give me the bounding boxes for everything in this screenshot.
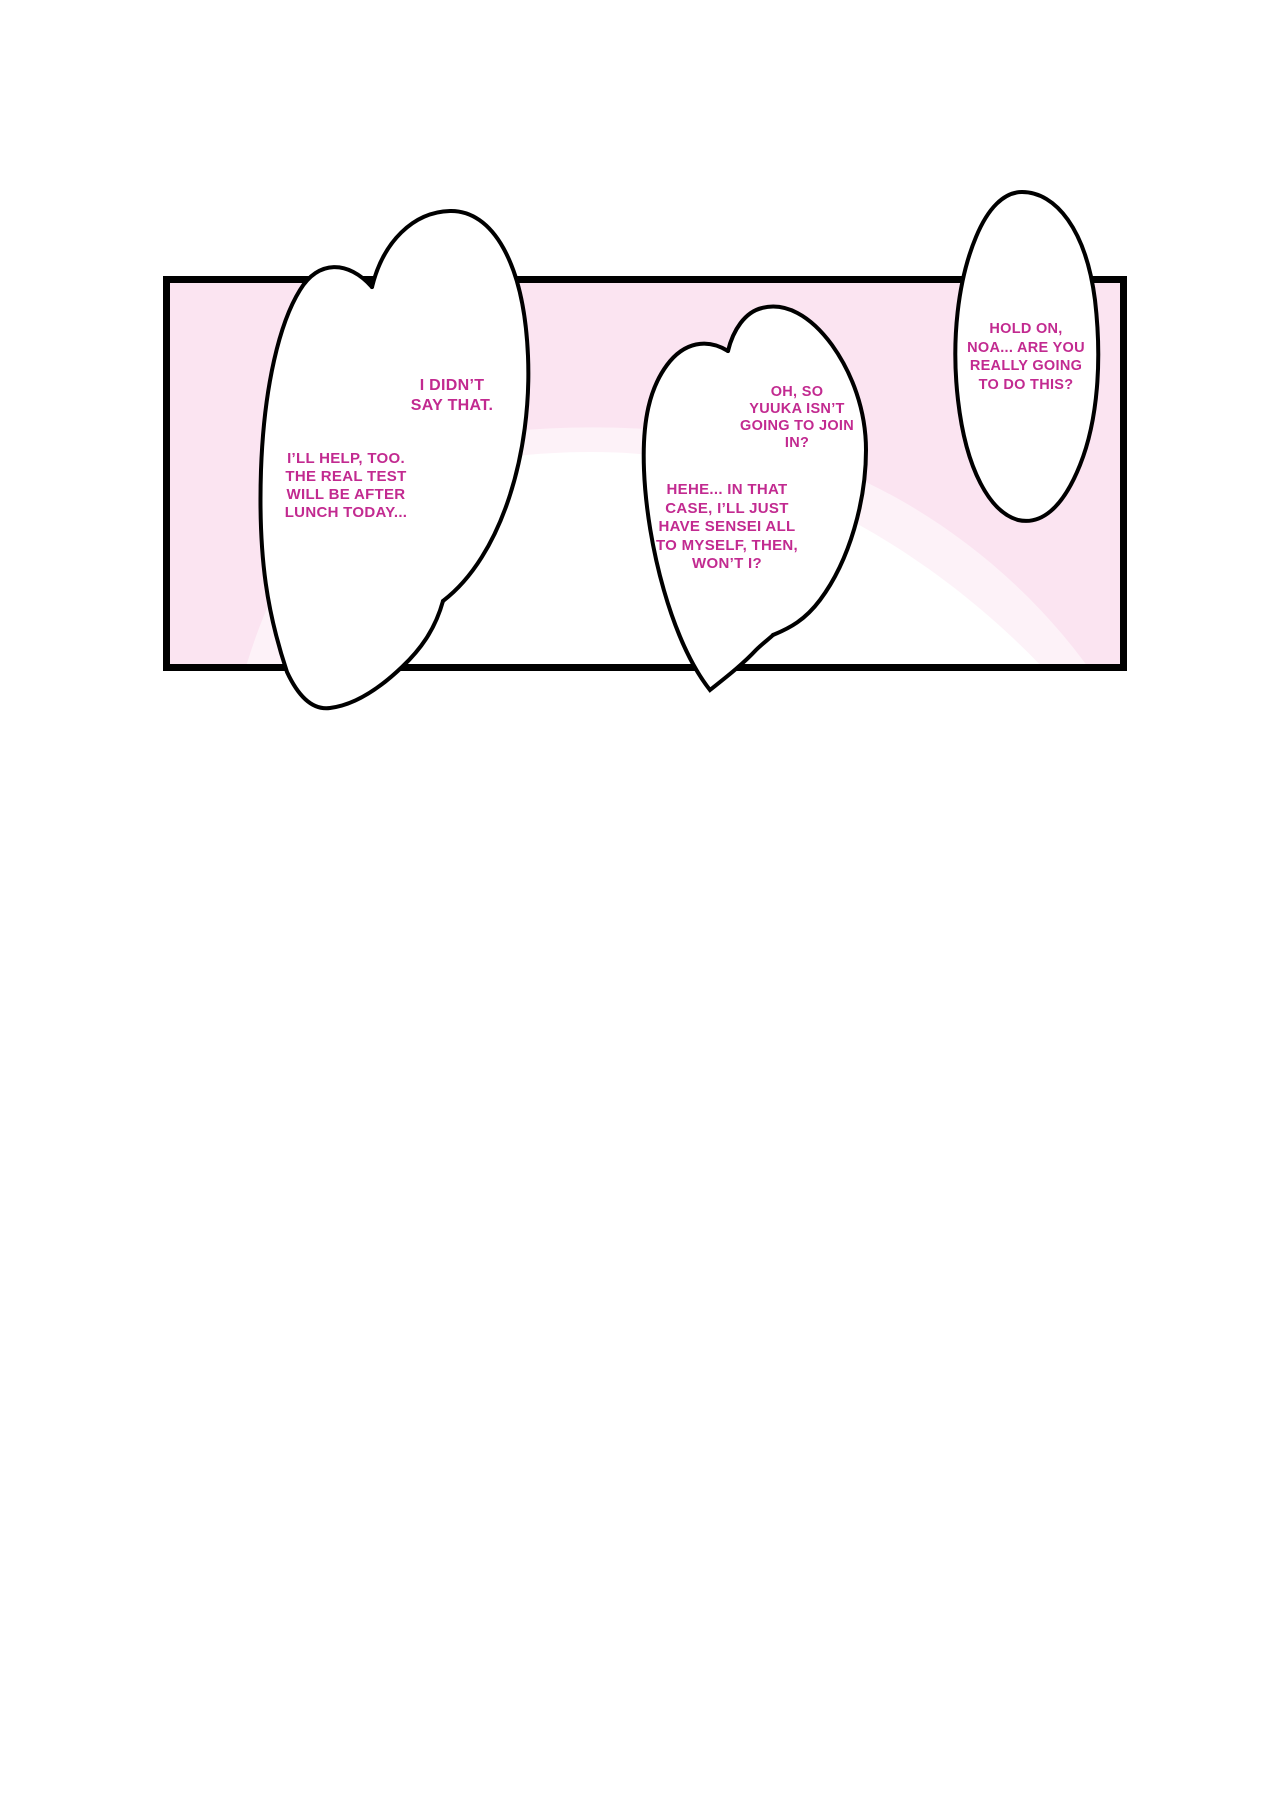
dialogue-line: OH, SO: [740, 384, 854, 401]
dialogue-hold-on-noa: HOLD ON, NOA... ARE YOU REALLY GOING TO …: [967, 320, 1085, 394]
comic-page: I DIDN’T SAY THAT. I’LL HELP, TOO. THE R…: [0, 0, 1280, 1807]
dialogue-line: HAVE SENSEI ALL: [656, 518, 798, 537]
dialogue-line: HEHE... IN THAT: [656, 481, 798, 500]
dialogue-oh-so-yuuka: OH, SO YUUKA ISN’T GOING TO JOIN IN?: [740, 384, 854, 452]
dialogue-line: TO MYSELF, THEN,: [656, 536, 798, 555]
dialogue-line: TO DO THIS?: [967, 376, 1085, 395]
dialogue-line: LUNCH TODAY...: [285, 504, 408, 522]
dialogue-hehe-in-that-case: HEHE... IN THAT CASE, I’LL JUST HAVE SEN…: [656, 481, 798, 574]
dialogue-line: THE REAL TEST: [285, 468, 408, 486]
dialogue-line: CASE, I’LL JUST: [656, 499, 798, 518]
dialogue-i-didnt-say-that: I DIDN’T SAY THAT.: [411, 376, 493, 416]
dialogue-line: NOA... ARE YOU: [967, 339, 1085, 358]
dialogue-line: YUUKA ISN’T: [740, 401, 854, 418]
dialogue-line: WON’T I?: [656, 555, 798, 574]
dialogue-line: WILL BE AFTER: [285, 486, 408, 504]
panel-artwork: [0, 0, 1280, 1807]
dialogue-line: I’LL HELP, TOO.: [285, 450, 408, 468]
dialogue-ill-help-too: I’LL HELP, TOO. THE REAL TEST WILL BE AF…: [285, 450, 408, 522]
dialogue-line: SAY THAT.: [411, 396, 493, 416]
dialogue-line: GOING TO JOIN: [740, 418, 854, 435]
dialogue-line: REALLY GOING: [967, 357, 1085, 376]
dialogue-line: I DIDN’T: [411, 376, 493, 396]
dialogue-line: IN?: [740, 435, 854, 452]
dialogue-line: HOLD ON,: [967, 320, 1085, 339]
